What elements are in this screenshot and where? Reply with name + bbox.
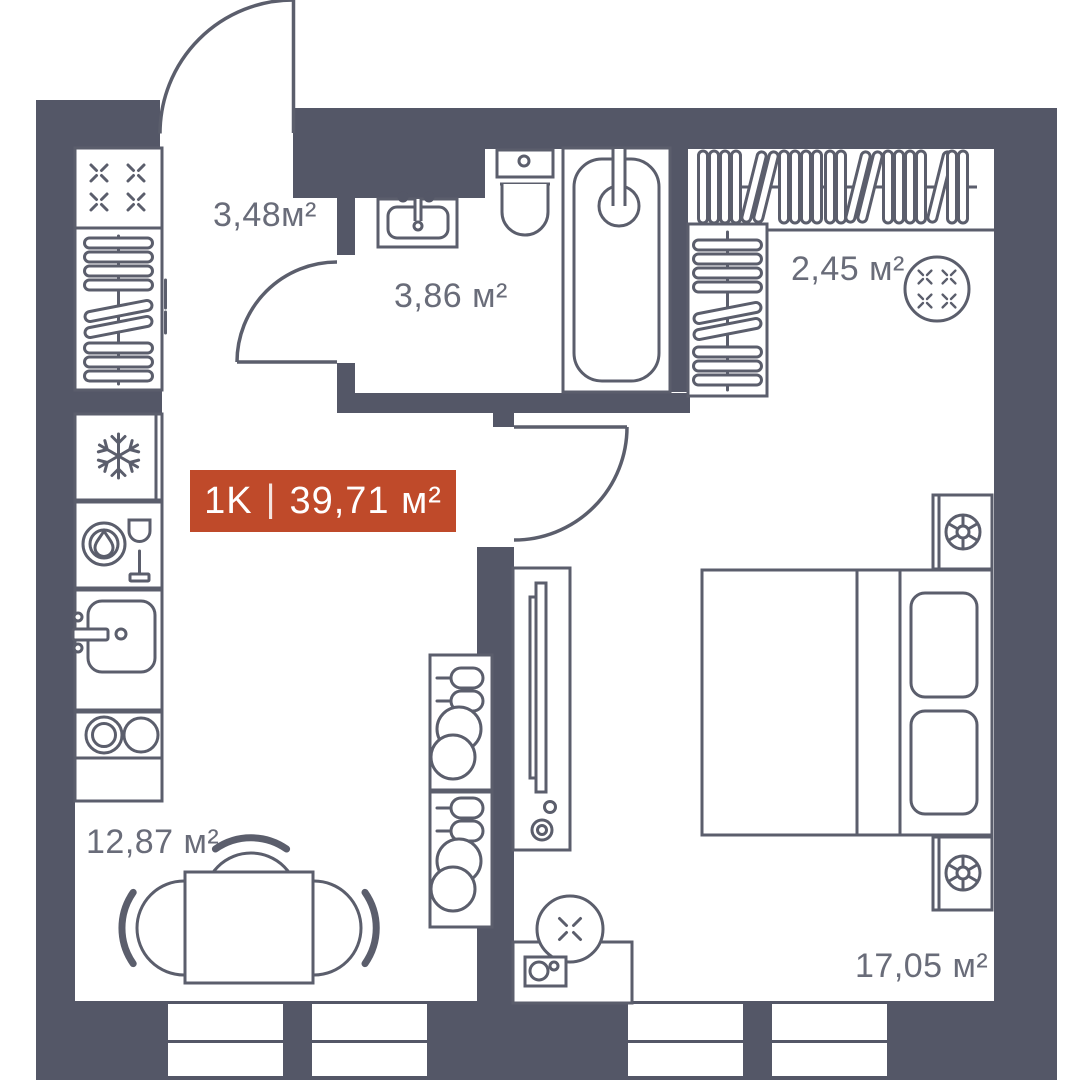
- hob-rings-icon: [75, 712, 162, 758]
- kitchen-counter: [75, 758, 162, 801]
- room-label-wardrobe: 2,45 м²: [791, 250, 905, 289]
- nightstand-lamp-icon: [933, 837, 992, 910]
- toilet-icon: [497, 150, 553, 235]
- floor-plan-drawing: [0, 0, 1080, 1080]
- shelf-unit-glasses: [430, 655, 492, 790]
- kitchen-sink-icon: [73, 590, 162, 710]
- closet-hanger-rail-side: [688, 224, 767, 396]
- badge-unit-type: 1K: [204, 480, 252, 523]
- bathroom-door-icon: [237, 262, 337, 362]
- floor-plan-page: 3,48м² 3,86 м² 2,45 м² 12,87 м² 17,05 м²…: [0, 0, 1080, 1080]
- shelf-unit-glasses: [430, 792, 492, 927]
- hall-wardrobe-hanger-rail-icon: [75, 228, 166, 390]
- badge-separator: |: [266, 478, 277, 521]
- area-badge: 1K | 39,71 м²: [190, 470, 456, 532]
- chair-back: [122, 892, 133, 963]
- room-label-hallway: 3,48м²: [213, 196, 317, 235]
- pillow: [911, 593, 977, 697]
- closet-washer-icon: [905, 257, 969, 321]
- room-label-bathroom: 3,86 м²: [394, 277, 508, 316]
- badge-area: 39,71 м²: [289, 480, 441, 523]
- room-label-bedroom: 17,05 м²: [855, 947, 988, 986]
- chair-back: [215, 838, 286, 849]
- nightstand-lamp-icon: [933, 495, 992, 569]
- bathtub-icon: [563, 148, 670, 392]
- bed: [702, 570, 992, 835]
- pillow: [911, 711, 977, 814]
- chair-back: [365, 892, 376, 963]
- dining-table: [185, 872, 313, 983]
- vanity-sink-icon: [378, 192, 457, 248]
- tv-stand-icon: [513, 568, 570, 850]
- washing-machine-icon: [513, 896, 632, 1003]
- stove-icon: [75, 148, 162, 228]
- closet-hanger-rail-top: [688, 151, 994, 230]
- entrance-door-icon: [160, 0, 294, 133]
- fridge-snowflake-icon: [75, 414, 162, 500]
- room-label-kitchen-living: 12,87 м²: [86, 823, 219, 862]
- dishwasher-icon: [75, 502, 162, 588]
- interior-door-icon: [514, 427, 627, 540]
